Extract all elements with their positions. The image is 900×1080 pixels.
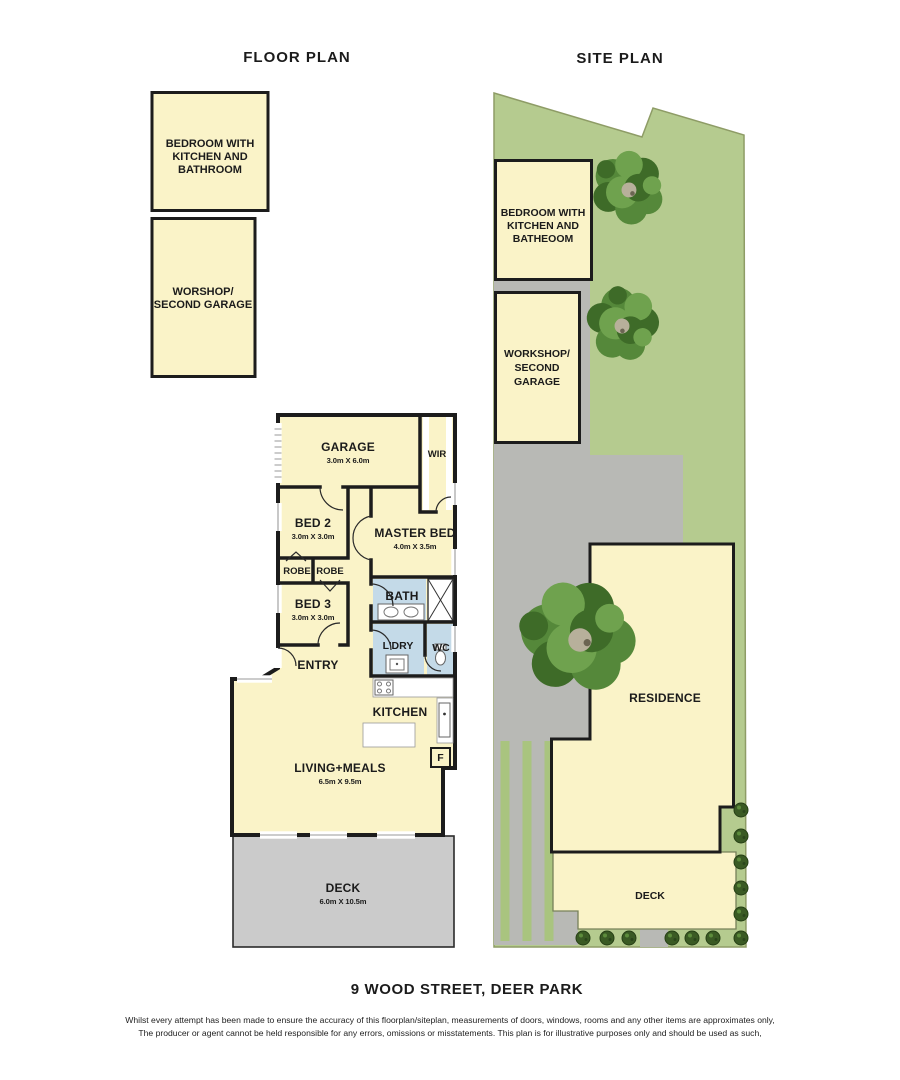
site-workshop-label-1: WORKSHOP/ — [504, 348, 570, 360]
fp-outbuilding-bedroom-label-1: BEDROOM WITH — [166, 138, 255, 150]
bed2-dims: 3.0m X 3.0m — [292, 532, 335, 541]
site-deck-label: DECK — [635, 890, 665, 902]
fp-deck-dims: 6.0m X 10.5m — [320, 897, 367, 906]
fp-outbuilding-bedroom-label-3: BATHROOM — [178, 164, 242, 176]
floor-plan: BEDROOM WITH KITCHEN AND BATHROOM WORSHO… — [152, 93, 459, 948]
site-bedroom-unit-label-2: KITCHEN AND — [507, 220, 579, 232]
floorplan-page: FLOOR PLAN SITE PLAN — [0, 0, 900, 1080]
shower — [428, 579, 453, 621]
master-bed-dims: 4.0m X 3.5m — [394, 542, 437, 551]
site-bedroom-unit-label-3: BATHEOOM — [513, 233, 574, 245]
garage-label: GARAGE — [321, 440, 375, 454]
fridge-label: F — [437, 752, 444, 764]
site-residence-label: RESIDENCE — [629, 691, 701, 705]
bed3-label: BED 3 — [295, 597, 331, 611]
master-bed-label: MASTER BED — [374, 526, 455, 540]
garage-dims: 3.0m X 6.0m — [327, 456, 370, 465]
fp-outbuilding-bedroom-label-2: KITCHEN AND — [172, 151, 247, 163]
kitchen-label: KITCHEN — [373, 705, 428, 719]
bath-label: BATH — [385, 589, 418, 603]
living-dims: 6.5m X 9.5m — [319, 777, 362, 786]
robe2-label: ROBE — [316, 566, 343, 577]
robe1-label: ROBE — [283, 566, 310, 577]
fp-outbuilding-workshop-label-1: WORSHOP/ — [172, 286, 233, 298]
laundry-trough-icon — [386, 655, 408, 673]
vanity-icon — [378, 604, 424, 620]
site-workshop-label-3: GARAGE — [514, 376, 560, 388]
entry-label: ENTRY — [297, 658, 338, 672]
plans-graphic: DECK RESIDENCE BEDROOM WITH KITCHEN AND … — [0, 0, 900, 1080]
wir-label: WIR — [428, 449, 447, 460]
living-label: LIVING+MEALS — [294, 761, 385, 775]
sink-icon — [439, 703, 450, 737]
site-workshop-label-2: SECOND — [515, 362, 560, 374]
garden-stripes — [501, 741, 554, 941]
ldry-label: L'DRY — [383, 640, 414, 652]
disclaimer-line-1: Whilst every attempt has been made to en… — [120, 1014, 780, 1027]
disclaimer: Whilst every attempt has been made to en… — [120, 1014, 780, 1039]
bed3-dims: 3.0m X 3.0m — [292, 613, 335, 622]
wc-label: WC — [432, 642, 450, 654]
fp-deck-label: DECK — [326, 881, 361, 895]
kitchen-island — [363, 723, 415, 747]
bed2-label: BED 2 — [295, 516, 331, 530]
address-line: 9 WOOD STREET, DEER PARK — [351, 981, 583, 998]
site-bedroom-unit-label-1: BEDROOM WITH — [501, 207, 586, 219]
fp-outbuilding-workshop-label-2: SECOND GARAGE — [154, 299, 252, 311]
stove-icon — [375, 680, 393, 695]
site-plan: DECK RESIDENCE BEDROOM WITH KITCHEN AND … — [494, 93, 748, 947]
disclaimer-line-2: The producer or agent cannot be held res… — [120, 1027, 780, 1040]
